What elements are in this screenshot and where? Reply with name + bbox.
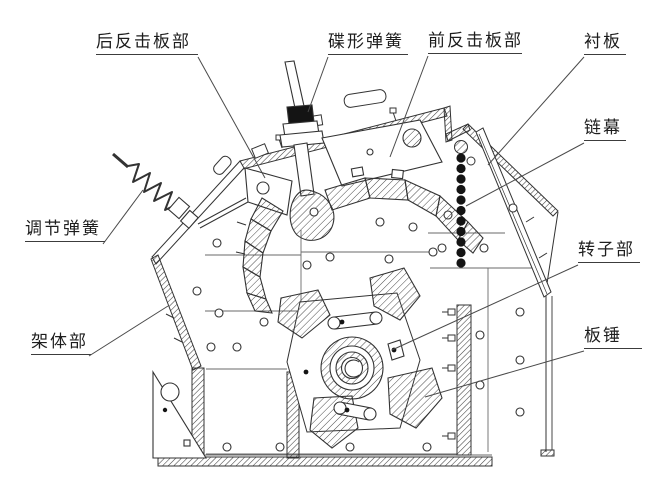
label-adjusting-spring: 调节弹簧 (25, 219, 105, 242)
label-rotor: 转子部 (578, 240, 640, 263)
label-rear-impact-plate: 后反击板部 (96, 32, 198, 55)
impact-crusher-diagram: 后反击板部 碟形弹簧 前反击板部 衬板 链幕 转子部 板锤 调节弹簧 架体部 (0, 0, 652, 489)
label-liner-plate: 衬板 (584, 32, 626, 55)
label-chain-curtain: 链幕 (584, 118, 626, 141)
label-disc-spring: 碟形弹簧 (328, 32, 408, 55)
label-frame: 架体部 (31, 332, 91, 355)
label-front-impact-plate: 前反击板部 (428, 31, 522, 54)
crusher-drawing (0, 0, 652, 489)
label-plate-hammer: 板锤 (584, 326, 642, 349)
